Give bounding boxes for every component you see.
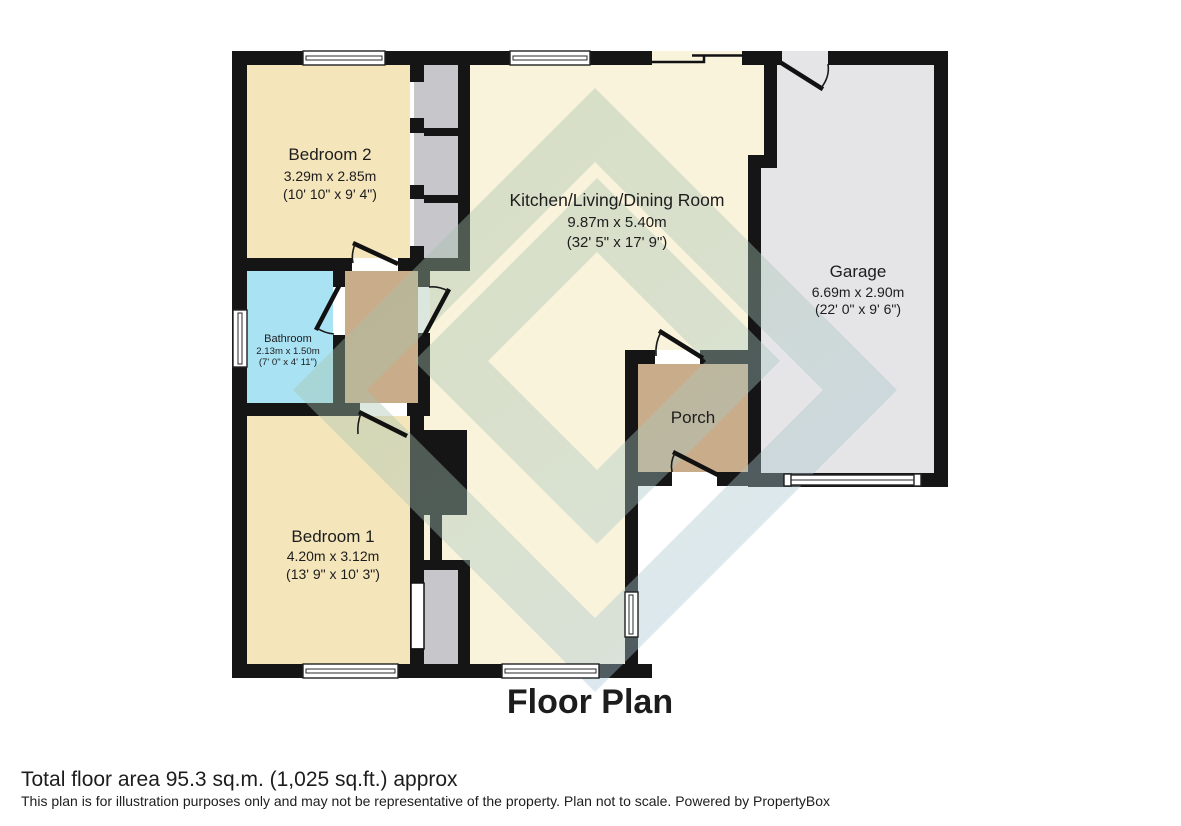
- kitchen-dims-imperial: (32' 5" x 17' 9"): [567, 234, 668, 251]
- wall-closet-divider2: [424, 195, 460, 203]
- bathroom-dims-imperial: (7' 0" x 4' 11"): [259, 357, 317, 368]
- bedroom1-closet-floor: [424, 570, 458, 664]
- kitchen-bottom-window: [502, 664, 599, 678]
- disclaimer-text: This plan is for illustration purposes o…: [21, 793, 830, 809]
- bathroom-dims-metric: 2.13m x 1.50m: [256, 346, 319, 357]
- bedroom2-label: Bedroom 2: [288, 145, 371, 164]
- garage-dims-imperial: (22' 0" x 9' 6"): [815, 301, 901, 317]
- bedroom1-dims-metric: 4.20m x 3.12m: [287, 548, 380, 564]
- kitchen-dims-metric: 9.87m x 5.40m: [567, 214, 666, 231]
- bedroom2-closet-floor: [414, 65, 460, 258]
- floor-plan-page: Bedroom 2 3.29m x 2.85m (10' 10" x 9' 4"…: [0, 0, 1181, 826]
- kitchen-right-window: [625, 592, 638, 637]
- kitchen-sliding-door: [652, 51, 742, 65]
- wall-garage-right: [934, 51, 948, 487]
- bathroom-label: Bathroom: [264, 333, 312, 345]
- wall-closet-stub1: [410, 65, 424, 82]
- wall-closet-divider1: [424, 128, 460, 136]
- bathroom-window: [233, 310, 247, 367]
- bedroom1-window: [303, 664, 398, 678]
- garage-floor-upper: [777, 65, 934, 162]
- bedroom2-window: [303, 51, 385, 65]
- wall-bathroom-right-upper: [333, 271, 345, 287]
- wall-closet-stub2: [410, 118, 424, 133]
- floor-plan-drawing: Bedroom 2 3.29m x 2.85m (10' 10" x 9' 4"…: [0, 0, 1181, 826]
- kitchen-label: Kitchen/Living/Dining Room: [510, 190, 725, 210]
- page-title: Floor Plan: [507, 683, 673, 721]
- total-floor-area-text: Total floor area 95.3 sq.m. (1,025 sq.ft…: [21, 768, 458, 791]
- wall-kitchen-garage-upper: [764, 51, 777, 162]
- garage-dims-metric: 6.69m x 2.90m: [812, 284, 905, 300]
- bedroom2-dims-metric: 3.29m x 2.85m: [284, 168, 377, 184]
- wall-closet2-right: [458, 560, 470, 664]
- wall-hall-bottom-right: [407, 403, 430, 416]
- wall-closet-stub3: [410, 185, 424, 199]
- garage-label: Garage: [830, 262, 887, 281]
- bedroom2-dims-imperial: (10' 10" x 9' 4"): [283, 186, 377, 202]
- bedroom1-dims-imperial: (13' 9" x 10' 3"): [286, 566, 380, 582]
- bedroom1-closet-bifold-door: [411, 583, 424, 649]
- garage-window: [784, 474, 921, 486]
- kitchen-top-window: [510, 51, 590, 65]
- porch-label: Porch: [671, 408, 715, 427]
- wall-bedroom2-bottom-left: [232, 258, 352, 271]
- bedroom1-label: Bedroom 1: [291, 527, 374, 546]
